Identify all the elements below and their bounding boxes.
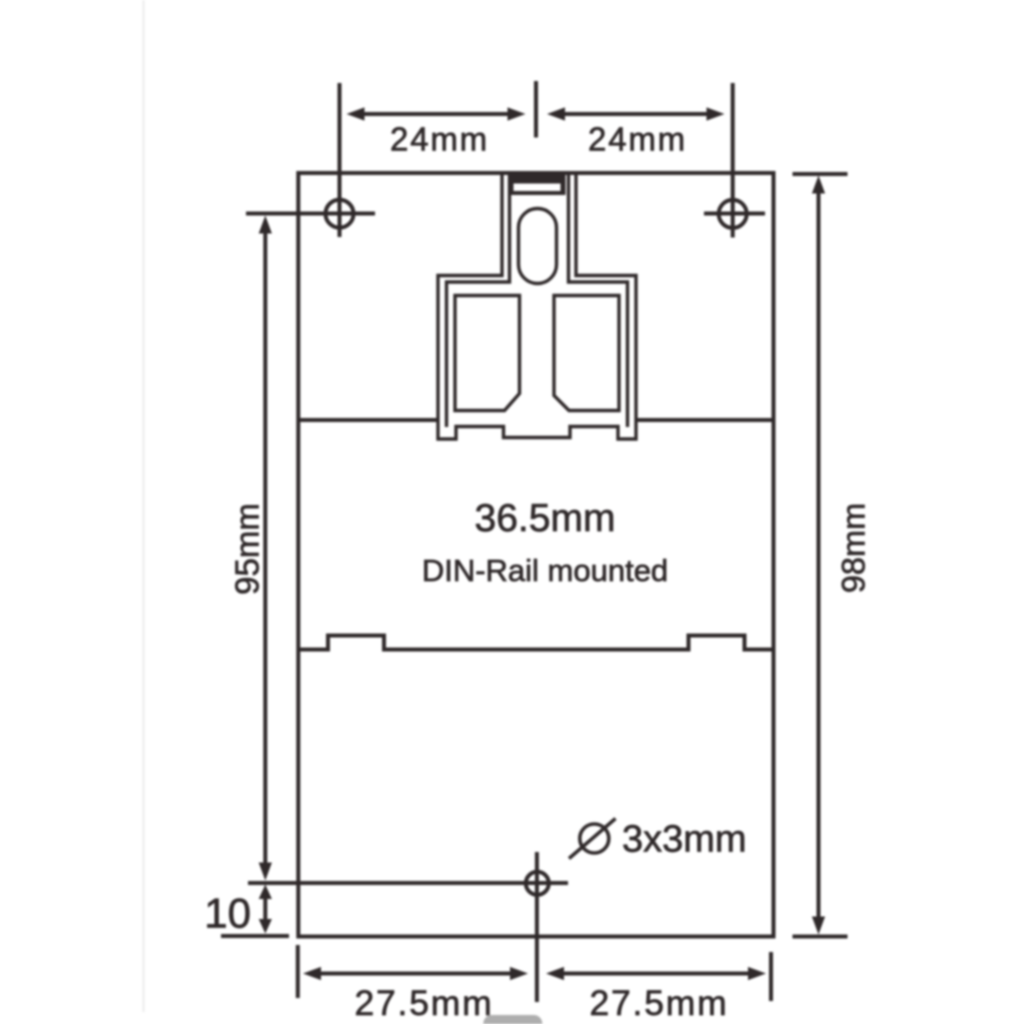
svg-text:98mm: 98mm <box>836 503 872 593</box>
svg-text:DIN-Rail mounted: DIN-Rail mounted <box>422 553 668 588</box>
svg-text:10: 10 <box>204 890 251 937</box>
svg-text:27.5mm: 27.5mm <box>354 983 493 1023</box>
svg-text:24mm: 24mm <box>390 121 489 158</box>
svg-text:27.5mm: 27.5mm <box>589 983 728 1023</box>
svg-text:24mm: 24mm <box>588 121 687 158</box>
svg-text:95mm: 95mm <box>229 503 266 595</box>
svg-text:36.5mm: 36.5mm <box>475 497 616 540</box>
svg-text:3x3mm: 3x3mm <box>622 819 747 861</box>
